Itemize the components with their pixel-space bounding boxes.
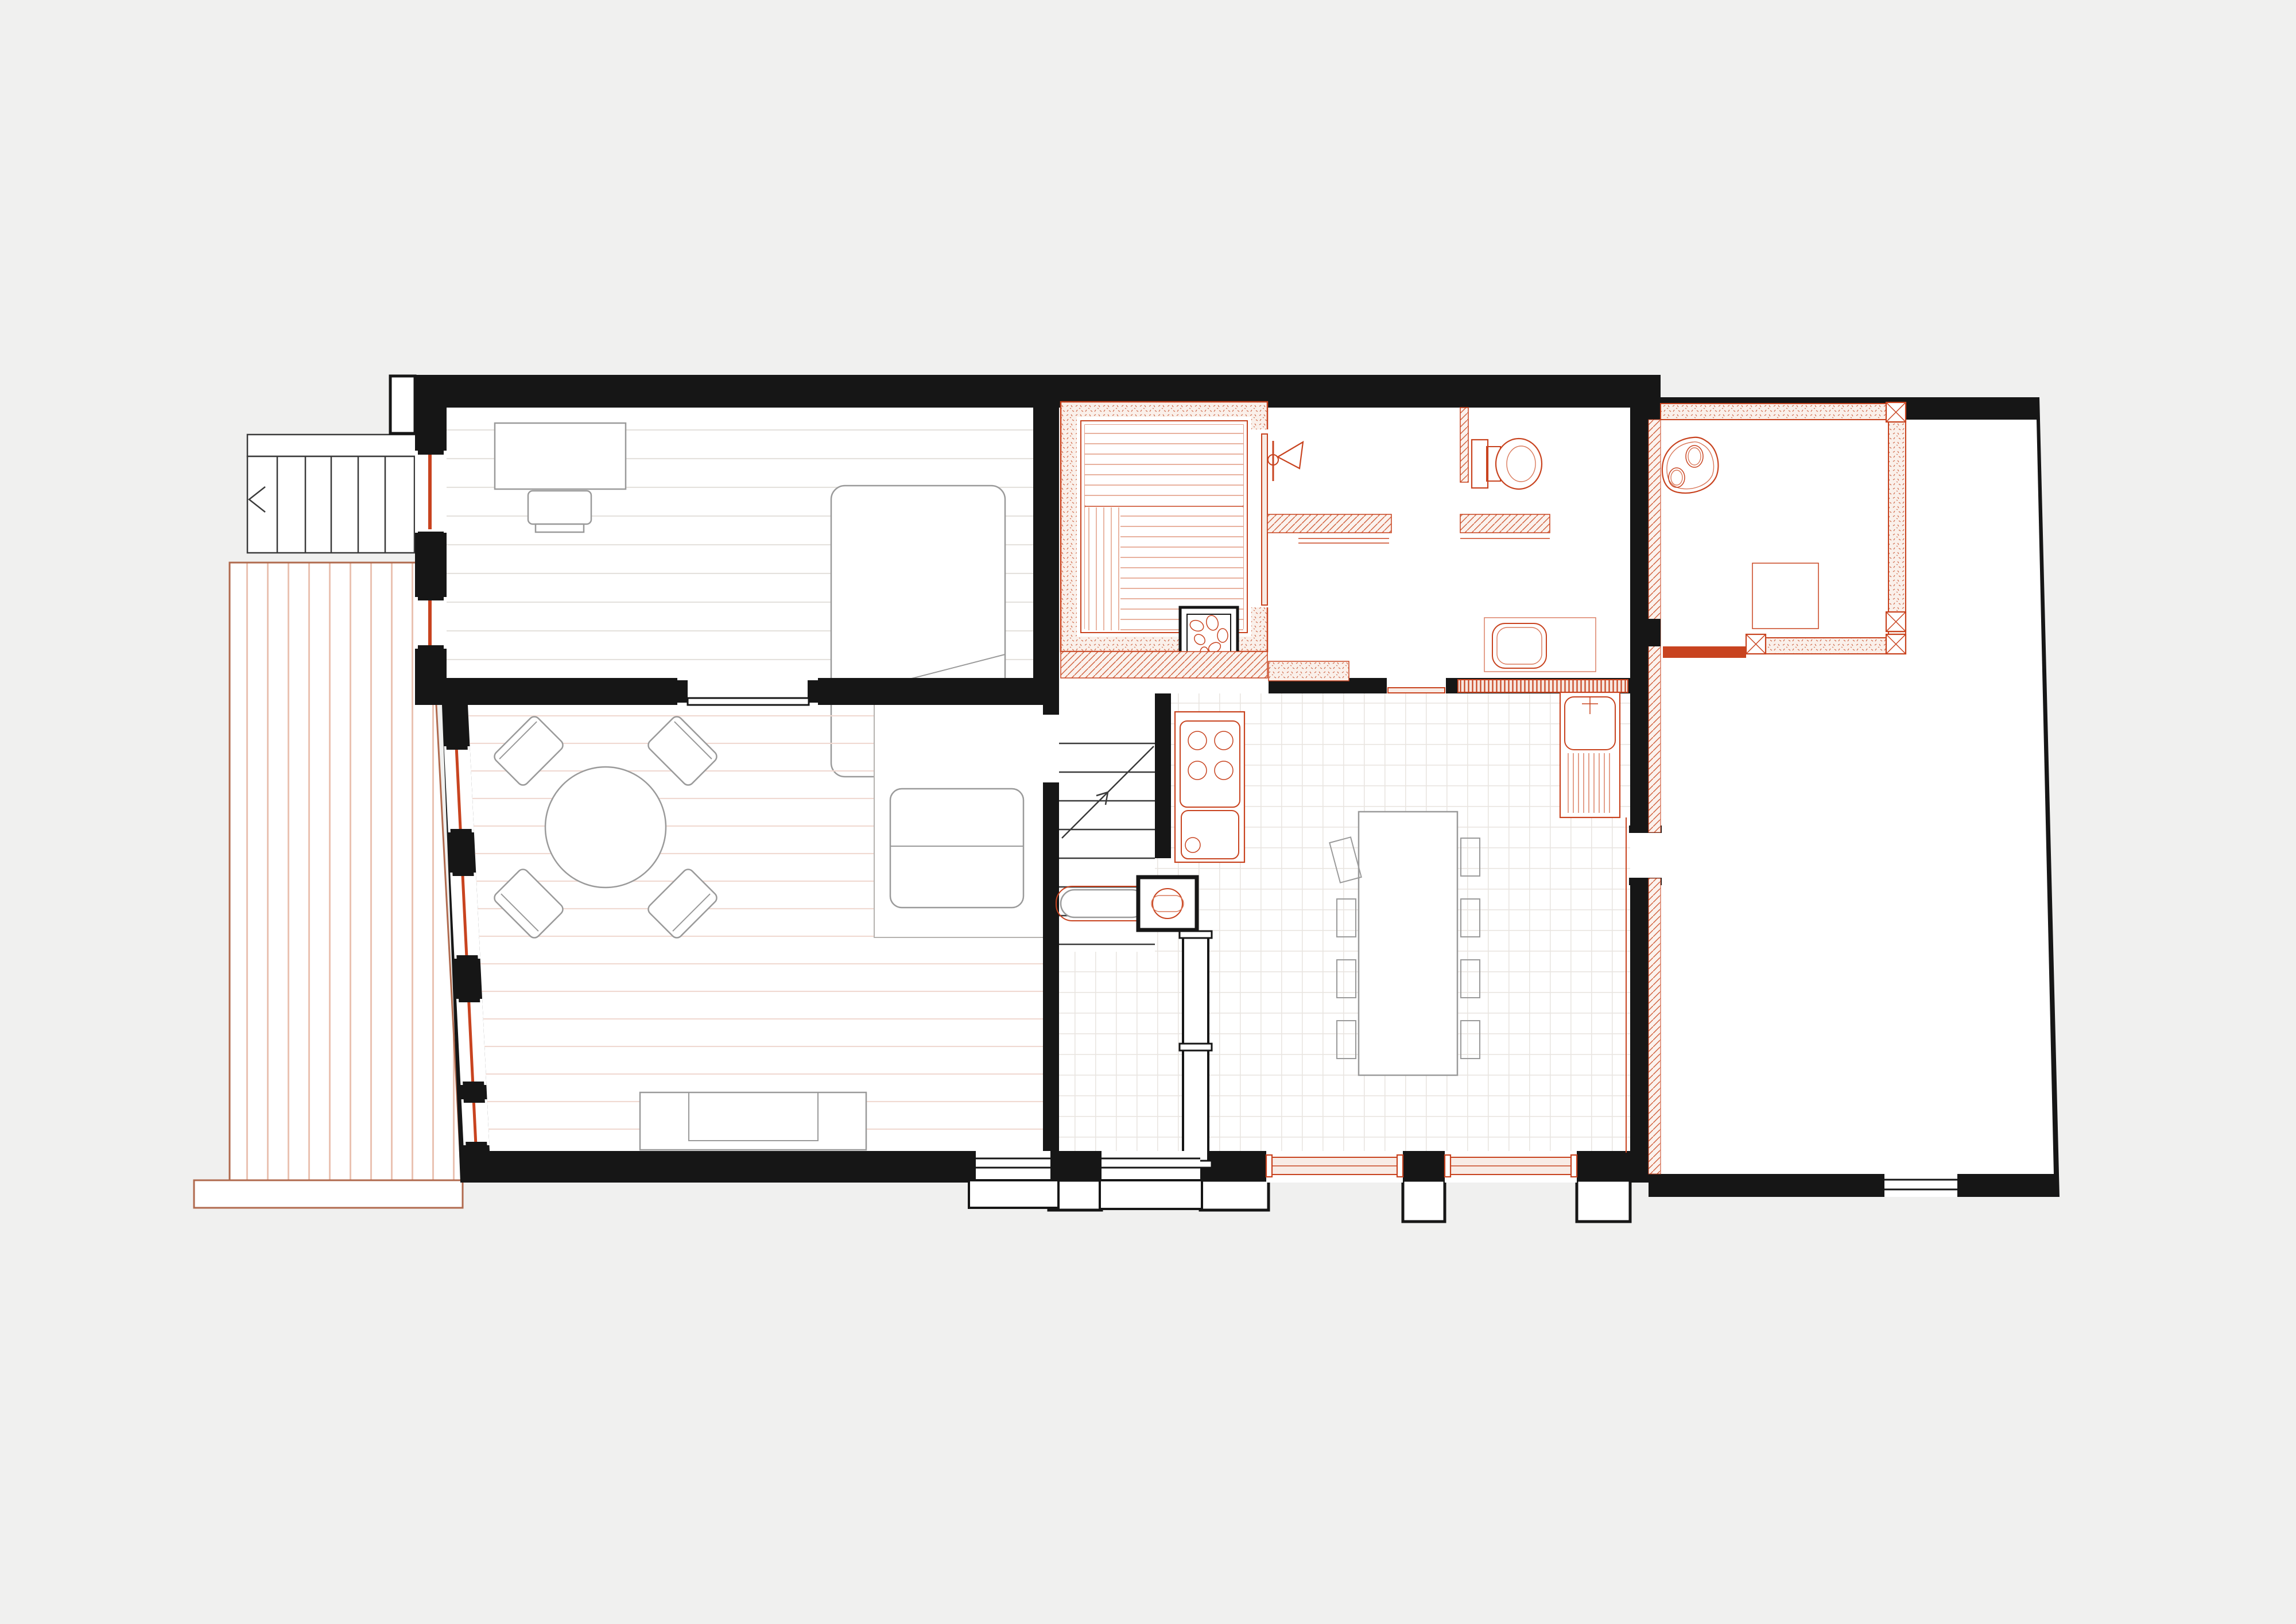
new-door-leaf — [1663, 646, 1746, 658]
facade-pier — [1403, 1180, 1445, 1222]
floor-plan-canvas: Ground floor renovation plan — [0, 0, 2296, 1624]
desk-chair — [528, 491, 591, 524]
new-wall-bottom — [1766, 638, 1888, 654]
window-west-bedroom — [415, 448, 447, 538]
timber-post-icon — [1746, 634, 1766, 654]
sink-counter — [1560, 692, 1620, 817]
bathroom-door-threshold — [1388, 688, 1445, 693]
desk-chair-base — [536, 524, 584, 532]
wall-stairs-kitchen — [1155, 693, 1171, 858]
annex-floor-area — [1661, 420, 2054, 1174]
toilet-icon — [1472, 439, 1542, 489]
floor-plan-drawing: Ground floor renovation plan — [0, 0, 2296, 1624]
door-jamb — [677, 680, 688, 703]
timber-post-icon — [1886, 612, 1906, 631]
wet-zone-corner-block — [1269, 661, 1349, 681]
window-west-living — [444, 743, 474, 836]
desk — [495, 423, 626, 489]
window-west-living — [456, 995, 487, 1088]
room-living — [468, 705, 1043, 1151]
window-west-bedroom-small — [415, 594, 447, 652]
partition-mullion — [1180, 1044, 1212, 1051]
living-terrace-door — [969, 1151, 1058, 1208]
timber-post-icon — [1886, 634, 1906, 654]
sauna-upper-bench — [1085, 425, 1243, 505]
facade-pier — [1577, 1180, 1630, 1222]
existing-wall-notch — [1642, 619, 1661, 646]
sliding-door-leaf — [688, 698, 809, 705]
sauna-side-bench — [1085, 507, 1120, 630]
window-west-living — [450, 869, 480, 962]
deck-step — [194, 1180, 463, 1208]
sofa — [890, 789, 1023, 908]
front-door — [1100, 1151, 1202, 1209]
annex-wall-insulation — [1649, 878, 1661, 1174]
annex-door-opening — [1630, 832, 1661, 878]
timber-post-icon — [1886, 402, 1906, 422]
new-wall-top — [1661, 404, 1890, 420]
radiator — [1458, 680, 1628, 692]
hob-counter — [1175, 712, 1244, 862]
sauna-landing-tiles — [1061, 652, 1267, 678]
facade-pier — [1200, 1180, 1269, 1210]
shower-bench — [1267, 514, 1391, 533]
window-west-living — [461, 1096, 489, 1149]
annex-opening — [1884, 1174, 1957, 1197]
entry-porch — [390, 376, 415, 433]
wc-partition — [1460, 408, 1468, 482]
door-jamb — [1380, 678, 1387, 693]
living-hall-door-opening — [1043, 715, 1059, 782]
new-window-kitchen — [1445, 1151, 1577, 1183]
sauna-door-leaf — [1262, 434, 1267, 605]
wall-bedroom-sauna — [1033, 375, 1059, 678]
partition-mullion — [1180, 931, 1212, 938]
new-window-kitchen — [1266, 1151, 1403, 1183]
round-dining-table — [545, 767, 666, 887]
door-jamb — [1446, 678, 1453, 693]
island-dining-table — [1359, 812, 1457, 1075]
wc-counter — [1460, 514, 1550, 533]
